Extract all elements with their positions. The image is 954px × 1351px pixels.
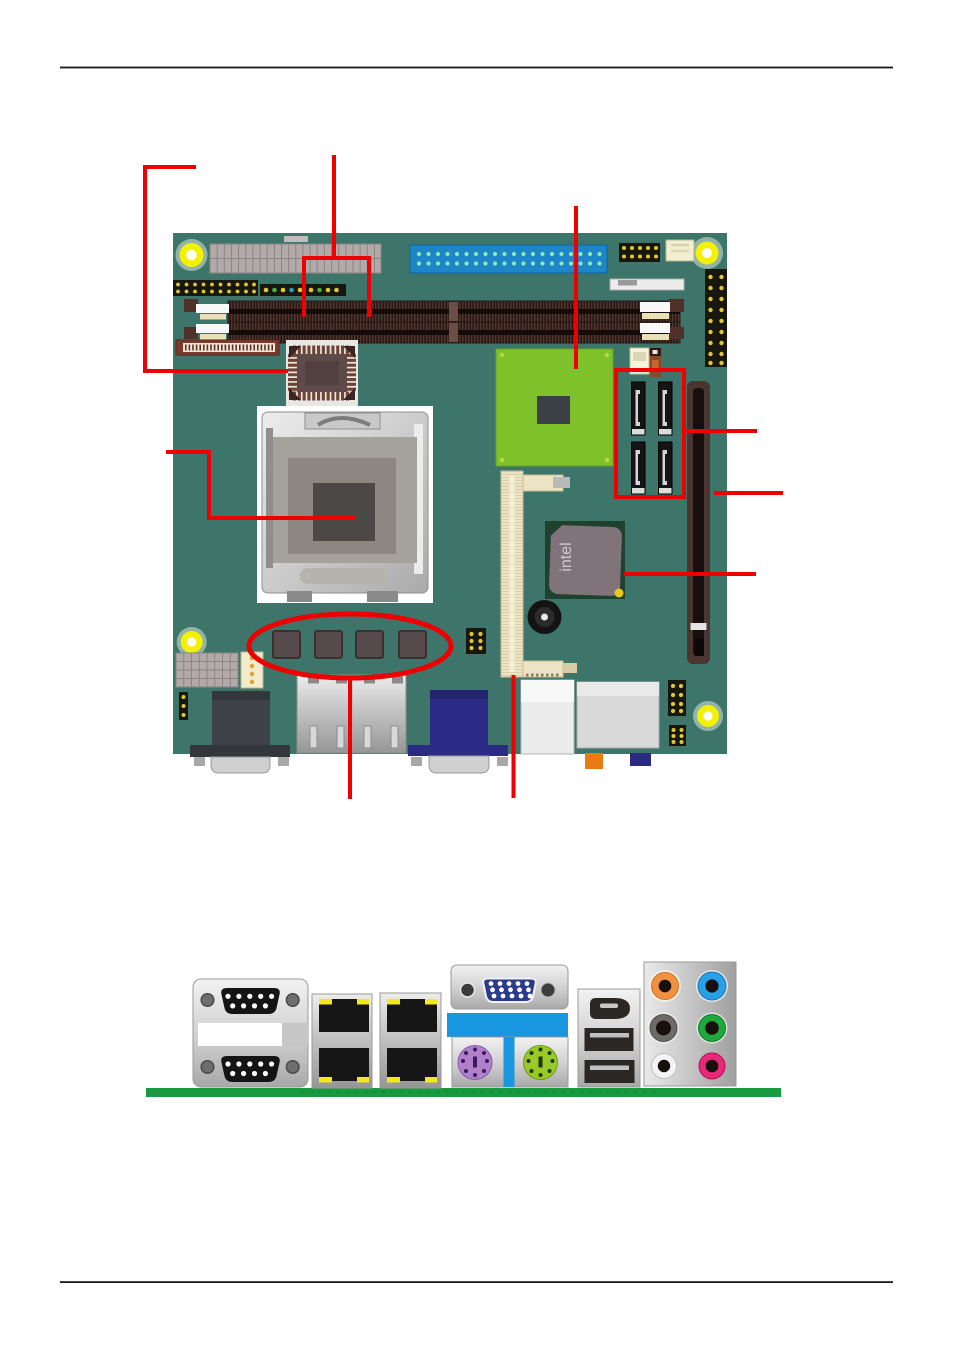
svg-text:intel: intel (558, 542, 575, 571)
